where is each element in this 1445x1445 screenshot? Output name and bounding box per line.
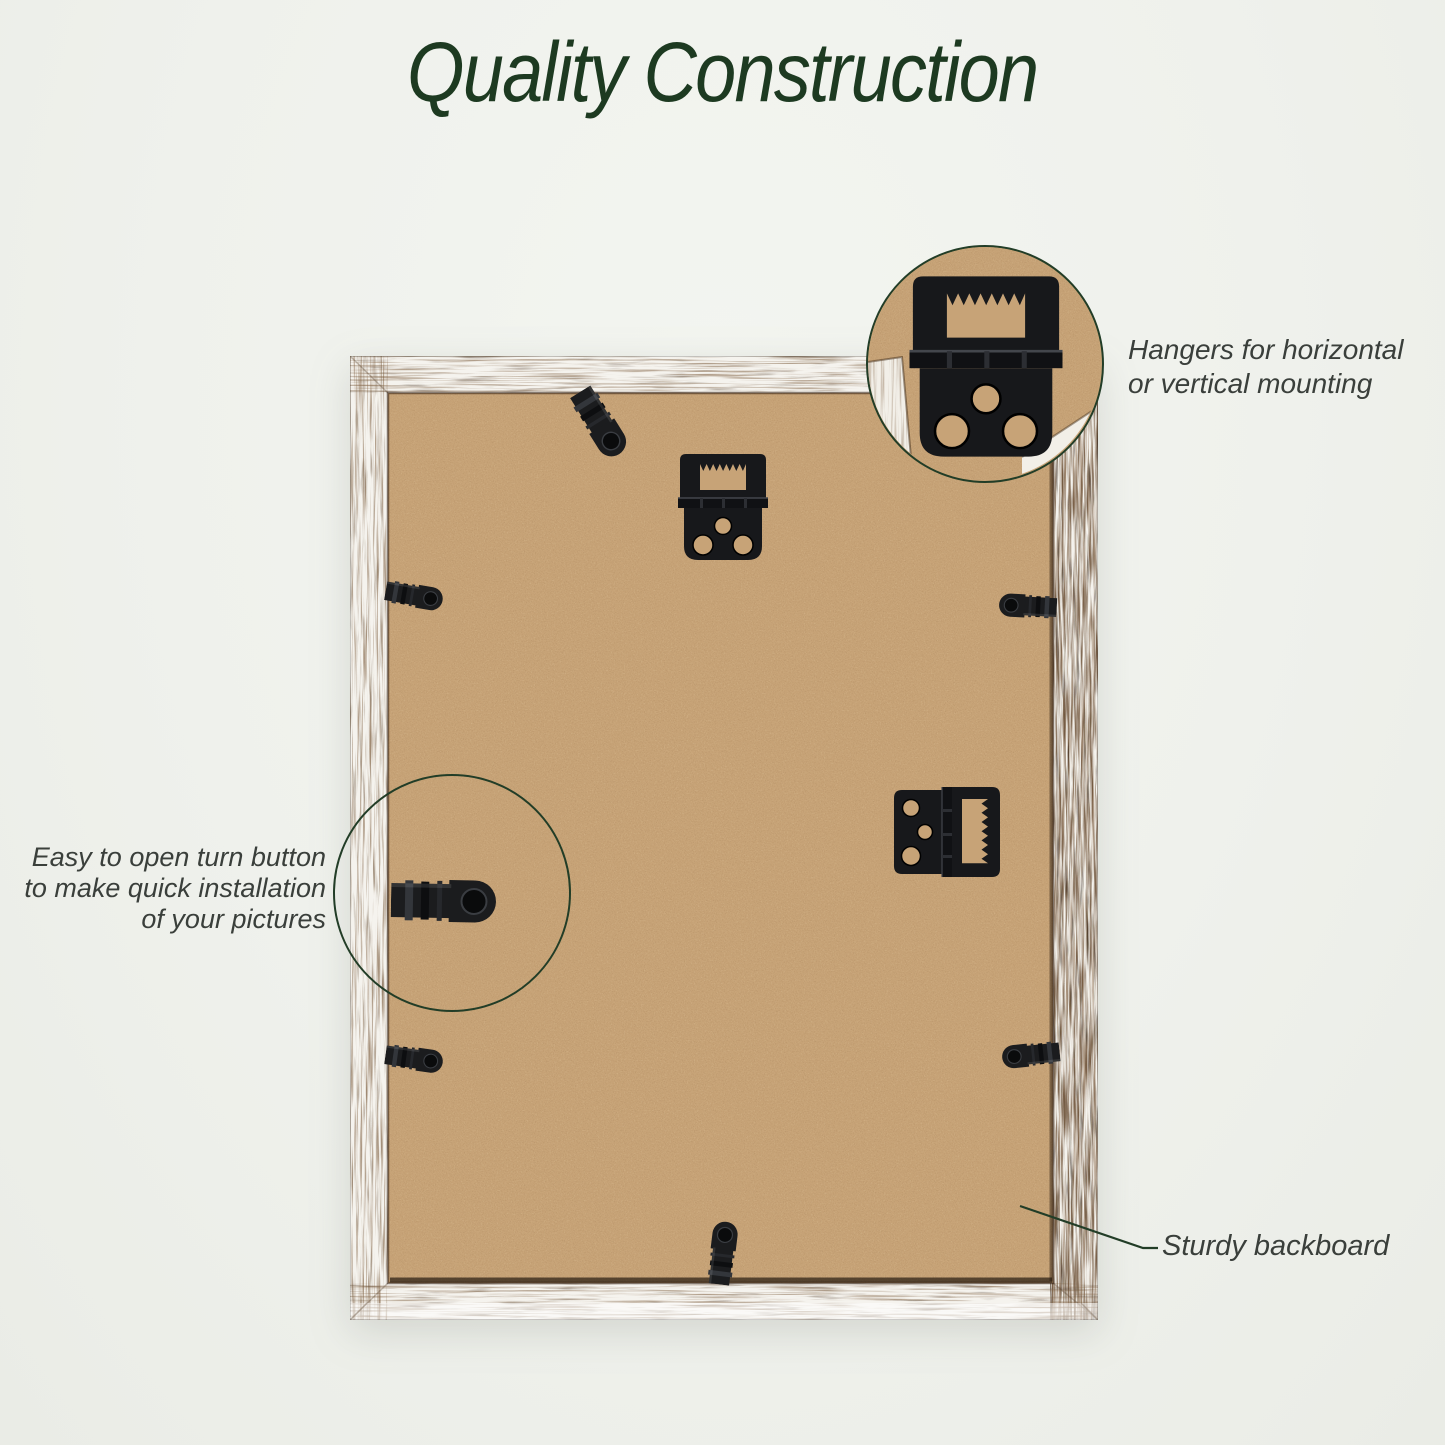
sawtooth-hanger-side [894, 787, 1000, 877]
page-title-text: Quality Construction [407, 24, 1037, 121]
sawtooth-hanger-top [678, 454, 768, 560]
annotation-backboard-label: Sturdy backboard [1162, 1230, 1389, 1262]
turn-button-callout-circle [333, 774, 571, 1012]
annotation-hangers: Hangers for horizontal or vertical mount… [1128, 333, 1403, 401]
annotation-hangers-line2: or vertical mounting [1128, 367, 1403, 401]
page-title: Quality Construction [0, 24, 1445, 121]
annotation-backboard: Sturdy backboard [1162, 1231, 1389, 1262]
annotation-turn-button-line3: of your pictures [4, 904, 326, 935]
product-infographic: Quality Construction [0, 0, 1445, 1445]
annotation-turn-button-line2: to make quick installation [4, 873, 326, 904]
annotation-turn-button-line1: Easy to open turn button [4, 842, 326, 873]
turn-button-right-top [998, 593, 1057, 619]
annotation-turn-button: Easy to open turn button to make quick i… [4, 842, 326, 935]
annotation-hangers-line1: Hangers for horizontal [1128, 333, 1403, 367]
hanger-inset-circle [866, 245, 1104, 483]
magnified-sawtooth-hanger [910, 276, 1063, 456]
